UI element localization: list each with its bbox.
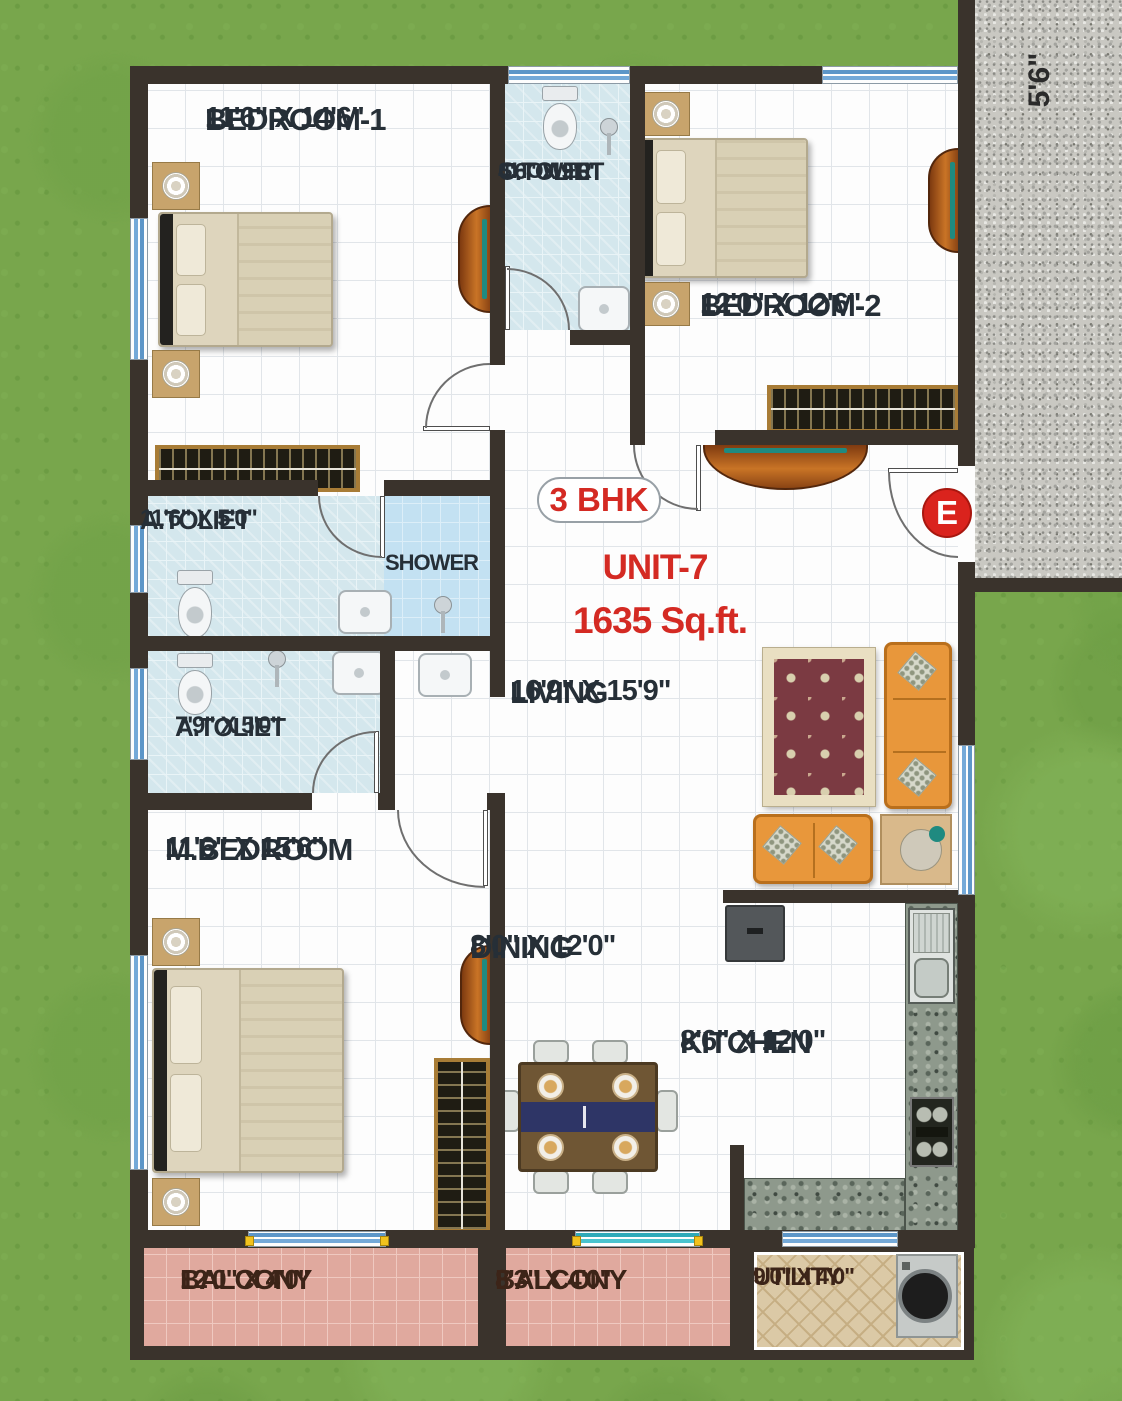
wall-segment: [730, 1145, 744, 1230]
quilt: [715, 140, 806, 276]
vanity-sink: [418, 653, 472, 697]
wall-segment: [490, 496, 505, 636]
room-dims: 11'6" X 14'6": [205, 102, 364, 136]
balcony-wall: [730, 1248, 744, 1360]
room-dims: 16'9" X 15'9": [510, 675, 671, 709]
window: [130, 525, 148, 593]
corridor-wall: [975, 578, 1122, 592]
wc-bowl: [178, 670, 213, 715]
window: [822, 66, 958, 84]
washer-drum: [898, 1269, 952, 1323]
seat-divider: [813, 823, 815, 878]
balcony1-floor: [144, 1248, 478, 1346]
sofa-three-seat: [884, 642, 952, 809]
headboard: [154, 970, 167, 1171]
wall-segment: [723, 890, 958, 903]
room-dims: 12'0" X 12'6": [700, 288, 861, 322]
balcony-wall: [130, 1346, 492, 1360]
mbedroom-wardrobe: [434, 1058, 490, 1233]
living-rug: [763, 648, 875, 806]
bedroom2-bed: [638, 138, 808, 278]
dining-table: [518, 1062, 658, 1172]
plate: [537, 1073, 564, 1100]
kitchen-counter-bottom: [744, 1178, 905, 1233]
tap-fixture: [268, 650, 286, 684]
table-runner: [521, 1102, 655, 1132]
tea-tray: [900, 829, 942, 871]
unit-name-label: UNIT-7: [530, 548, 780, 588]
bedroom1-dresser: [458, 205, 490, 313]
mbedroom-nightstand-top: [152, 918, 200, 966]
wc-tank: [177, 570, 214, 585]
window: [958, 745, 975, 895]
a-toilet1-sink: [338, 590, 392, 634]
bedroom1-nightstand-top: [152, 162, 200, 210]
kitchen-sink: [908, 908, 955, 1004]
wall-segment: [487, 793, 505, 810]
wc-tank: [177, 653, 214, 668]
bedroom2-nightstand-bottom: [642, 282, 690, 326]
shower-head-icon: [428, 596, 458, 636]
wall-segment: [384, 480, 490, 496]
balcony2-floor: [506, 1248, 730, 1346]
cushion: [818, 825, 857, 864]
room-dims: 7'9" X 5'0": [175, 712, 281, 740]
pillow: [170, 1074, 202, 1152]
side-table: [880, 814, 952, 885]
dining-chair: [592, 1040, 628, 1064]
wall-segment: [490, 330, 505, 345]
window: [508, 66, 630, 84]
wall-segment: [148, 480, 318, 496]
mbedroom-bed: [152, 968, 344, 1173]
a-toilet2-wc: [172, 653, 218, 715]
room-note: SHOWER: [385, 550, 478, 576]
pillow: [176, 224, 206, 276]
room-dims: 8'6" X 12'0": [680, 1025, 825, 1059]
sink-drainboard: [913, 913, 950, 953]
window: [130, 955, 148, 1170]
wall-segment: [715, 430, 958, 445]
balcony-wall: [130, 1248, 144, 1360]
dining-chair: [533, 1170, 569, 1194]
room-dims: 11'6" X 15'6": [165, 832, 324, 866]
shower-fixture: [600, 118, 618, 158]
refrigerator: [725, 905, 785, 962]
mbedroom-nightstand-bottom: [152, 1178, 200, 1226]
wall-segment: [130, 793, 312, 810]
unit-area-label: 1635 Sq.ft.: [530, 600, 790, 642]
room-dims: 11'6" X 5'0": [140, 505, 257, 533]
entrance-marker: E: [922, 488, 972, 538]
bedroom1-nightstand-bottom: [152, 350, 200, 398]
plate: [537, 1134, 564, 1161]
seat-divider: [893, 698, 946, 700]
headboard: [160, 214, 173, 345]
bedroom1-bed: [158, 212, 333, 347]
plate: [612, 1134, 639, 1161]
plate: [612, 1073, 639, 1100]
wall-segment: [380, 651, 395, 793]
wc-bowl: [178, 587, 213, 638]
pillow: [170, 986, 202, 1064]
sink-basin: [914, 958, 949, 998]
wc-tank: [542, 86, 579, 101]
cushion: [897, 651, 936, 690]
room-dims: 12'0" X 4'0": [180, 1264, 309, 1294]
quilt: [239, 970, 342, 1171]
wc-bowl: [543, 103, 578, 150]
dining-chair: [592, 1170, 628, 1194]
balcony1-sliding-window: [248, 1231, 386, 1247]
pillow: [656, 150, 686, 204]
quilt: [237, 214, 331, 345]
wall-segment: [630, 84, 645, 445]
wall-segment: [490, 430, 505, 496]
washing-machine: [896, 1254, 958, 1338]
gas-stove: [910, 1097, 954, 1167]
dining-chair: [533, 1040, 569, 1064]
wall-segment: [958, 0, 975, 1248]
c-toilet-wc: [537, 86, 583, 150]
dining-chair: [656, 1090, 678, 1132]
cushion: [762, 825, 801, 864]
window: [130, 218, 148, 360]
pillow: [656, 212, 686, 266]
room-dims: 8'3" X 4'0": [495, 1264, 611, 1294]
wall-segment: [378, 793, 395, 810]
balcony-wall: [492, 1346, 744, 1360]
unit-type-badge: 3 BHK: [537, 477, 661, 523]
bedroom2-nightstand-top: [642, 92, 690, 136]
bedroom2-dresser: [928, 148, 958, 253]
bedroom2-wardrobe: [767, 385, 959, 433]
corridor-width-label: 5'6": [1020, 20, 1060, 140]
wall-segment: [490, 84, 505, 365]
c-toilet-sink: [578, 286, 630, 332]
wall-segment: [570, 330, 630, 345]
wall-segment: [490, 651, 505, 697]
floor-plan: 5'6": [0, 0, 1122, 1401]
a-toilet2-sink: [332, 651, 386, 695]
balcony2-sliding-window: [575, 1231, 700, 1247]
wall-segment: [490, 810, 505, 1230]
wall-segment: [130, 636, 505, 651]
room-note: SHOWER: [498, 158, 591, 184]
a-toilet1-wc: [172, 570, 218, 638]
cushion: [897, 757, 936, 796]
sofa-two-seat: [753, 814, 873, 884]
seat-divider: [893, 751, 946, 753]
pillow: [176, 284, 206, 336]
window: [130, 668, 148, 760]
utility-window: [782, 1231, 898, 1247]
room-dims: 8'0" X 12'0": [470, 930, 615, 964]
room-dims: 9'0" X 4'0": [753, 1263, 854, 1290]
balcony-wall: [478, 1248, 492, 1360]
